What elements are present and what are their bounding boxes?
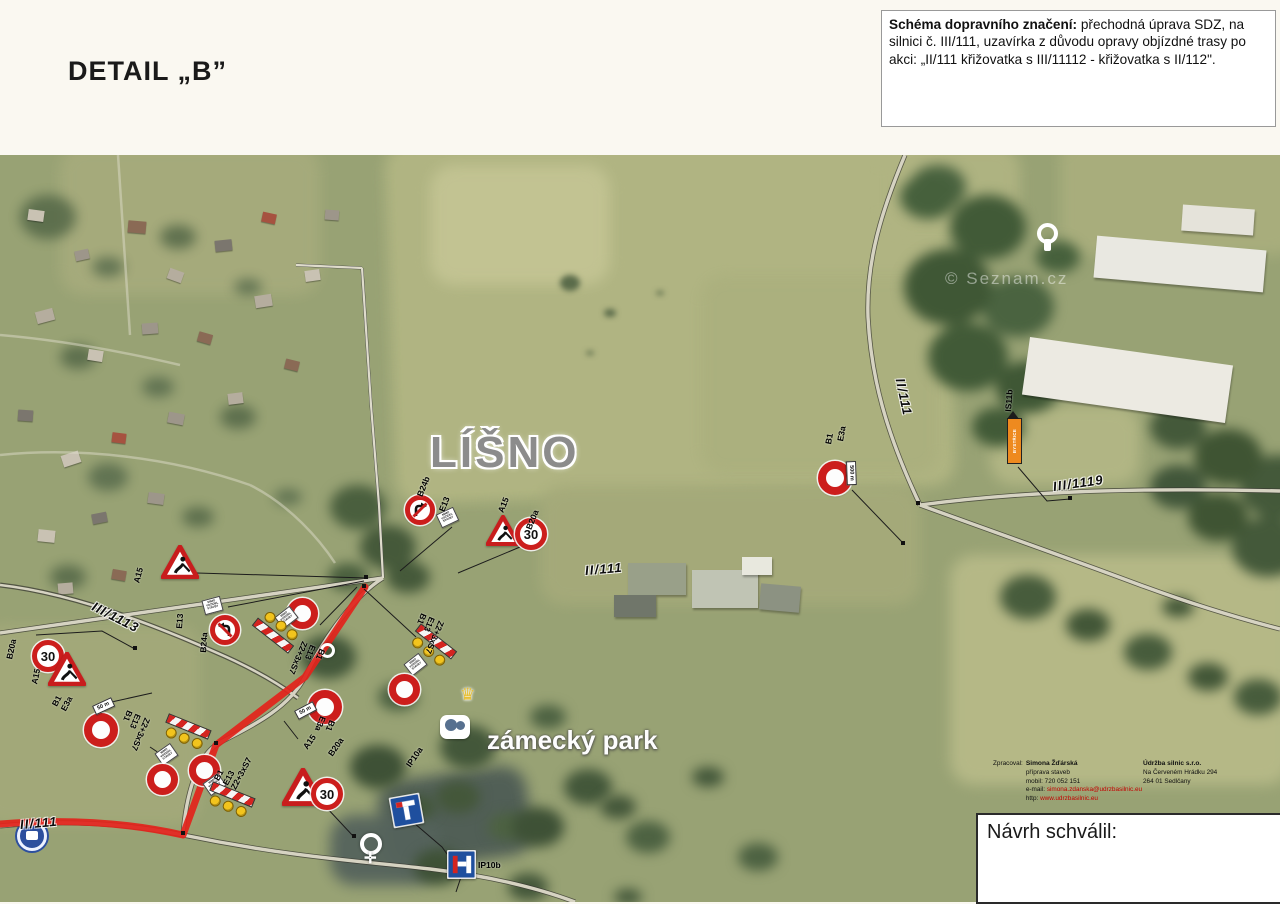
park-tree-icon <box>440 715 470 739</box>
credits-block: Zpracoval: Simona Žďárská příprava stave… <box>993 760 1255 803</box>
web-value: www.udrzbasilnic.eu <box>1040 795 1098 802</box>
dead-end-sign-ip10a <box>389 793 425 829</box>
scheme-note-lead: Schéma dopravního značení: <box>889 17 1077 32</box>
page-title: DETAIL „B” <box>68 56 227 87</box>
no-left-turn-sign-b24a <box>210 615 240 645</box>
park-label: zámecký park <box>487 725 658 756</box>
no-right-turn-glyph <box>410 500 430 520</box>
no-entry-sign-b1 <box>389 674 420 705</box>
town-label: LÍŠNO <box>430 428 579 478</box>
detour-destination: BYSTŘICE <box>1012 429 1017 453</box>
no-entry-sign-b1 <box>84 713 118 747</box>
company-name: Údržba silnic s.r.o. <box>1143 760 1201 767</box>
no-right-turn-sign-b24b <box>405 495 435 525</box>
author-mobile: mobil: 720 052 151 <box>1026 778 1142 787</box>
speed-limit-sign-b20a: 30 <box>311 778 343 810</box>
web-label: http: <box>1026 795 1038 802</box>
author-name: Simona Žďárská <box>1026 760 1078 767</box>
sign-label-e13: E13 <box>174 613 185 629</box>
speed-value: 30 <box>320 787 334 802</box>
sign-label-b1: B1 <box>823 433 835 445</box>
no-left-turn-glyph <box>215 620 235 640</box>
sign-label-b24a: B24a <box>198 632 209 653</box>
distance-plate-500m: 500 m <box>846 461 857 485</box>
map-watermark: © Seznam.cz <box>945 269 1068 289</box>
roadworks-sign-a15 <box>48 652 86 686</box>
detour-sign-is11b: BYSTŘICE <box>1007 418 1022 464</box>
arrow-up-icon <box>1007 411 1019 419</box>
roadworks-sign-a15 <box>161 545 199 579</box>
email-value: simona.zdanska@udrzbasilnic.eu <box>1047 786 1142 793</box>
email-label: e-mail: <box>1026 786 1045 793</box>
leader-lines <box>36 467 1070 892</box>
company-address2: 264 01 Sedlčany <box>1143 778 1217 787</box>
company-address1: Na Červeném Hrádku 294 <box>1143 769 1217 778</box>
sign-label-is11b: IS11b <box>1003 389 1015 412</box>
approval-box: Návrh schválil: <box>976 813 1280 904</box>
sign-label-ip10b: IP10b <box>478 860 501 870</box>
approval-label: Návrh schválil: <box>987 821 1117 843</box>
scheme-note-box: Schéma dopravního značení: přechodná úpr… <box>881 10 1276 127</box>
prepared-by-label: Zpracoval: <box>993 760 1023 803</box>
chateau-icon: ♛ <box>460 685 475 705</box>
no-entry-sign-b1 <box>147 764 178 795</box>
author-role: příprava staveb <box>1026 769 1142 778</box>
castle-gate-icon <box>1037 223 1058 253</box>
chapel-icon: ✛ <box>364 849 377 867</box>
dead-end-sign-ip10b <box>447 850 476 879</box>
